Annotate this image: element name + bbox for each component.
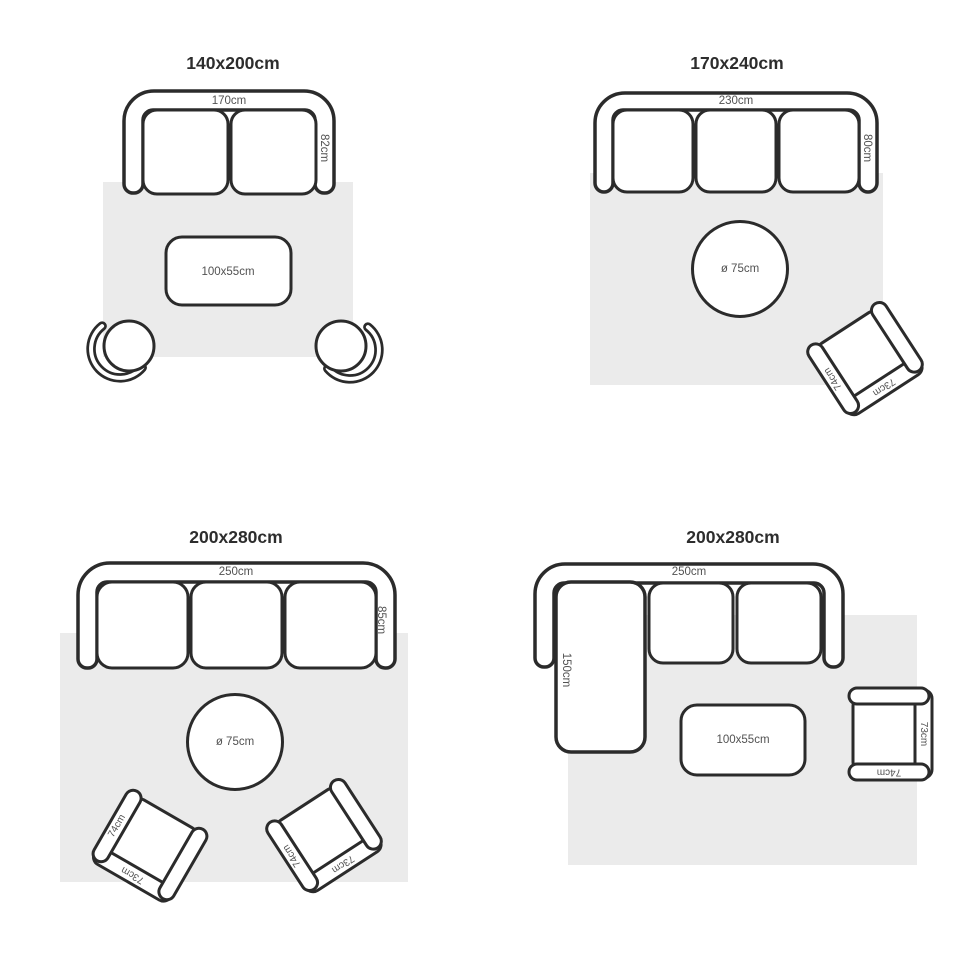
armchair-seat xyxy=(853,698,923,770)
seat-cushion xyxy=(649,583,733,663)
round-chair-seat xyxy=(104,321,154,371)
seat-cushion xyxy=(231,110,316,194)
sofa-depth-label: 80cm xyxy=(861,134,873,162)
layout-title: 170x240cm xyxy=(690,53,783,73)
seat-cushion xyxy=(191,582,282,668)
sofa-depth-label: 85cm xyxy=(375,606,387,634)
round-chair-right xyxy=(316,321,379,379)
sofa-width-label: 230cm xyxy=(719,95,754,107)
layout-title: 140x200cm xyxy=(186,53,279,73)
sofa-width-label: 250cm xyxy=(672,566,707,578)
seat-cushion xyxy=(285,582,376,668)
coffee-table-size-label: 100x55cm xyxy=(201,266,254,278)
sofa-width-label: 170cm xyxy=(212,95,247,107)
seat-cushion xyxy=(143,110,228,194)
rug-size-guide-diagram: 140x200cm 170cm 82cm 100x55cm 170x240cm xyxy=(0,0,970,970)
seat-cushion xyxy=(737,583,821,663)
armchair-arm xyxy=(849,688,929,704)
seat-cushion xyxy=(97,582,188,668)
armchair-width-label: 73cm xyxy=(918,722,929,746)
round-table-size-label: ø 75cm xyxy=(721,263,759,275)
round-table-size-label: ø 75cm xyxy=(216,736,254,748)
armchair: 74cm 73cm xyxy=(849,688,932,780)
chaise-depth-label: 150cm xyxy=(560,653,572,688)
seat-cushion xyxy=(696,110,776,192)
rug-size-guide: 140x200cm 170cm 82cm 100x55cm 170x240cm xyxy=(0,0,970,970)
round-chair-seat xyxy=(316,321,366,371)
sofa-depth-label: 82cm xyxy=(318,134,330,162)
layout-200x280-straight: 200x280cm 250cm 85cm ø 75cm 74cm 73cm 74… xyxy=(60,527,408,905)
layout-200x280-sectional: 200x280cm 250cm 150cm 100x55cm 74cm 73cm xyxy=(535,527,932,865)
armchair-depth-label: 74cm xyxy=(877,767,901,778)
coffee-table-size-label: 100x55cm xyxy=(716,734,769,746)
layout-170x240: 170x240cm 230cm 80cm ø 75cm 74cm 73cm xyxy=(590,53,927,419)
layout-140x200: 140x200cm 170cm 82cm 100x55cm xyxy=(91,53,379,379)
sofa-width-label: 250cm xyxy=(219,566,254,578)
seat-cushion xyxy=(779,110,859,192)
round-chair-left xyxy=(91,321,154,378)
layout-title: 200x280cm xyxy=(686,527,779,547)
layout-title: 200x280cm xyxy=(189,527,282,547)
seat-cushion xyxy=(613,110,693,192)
